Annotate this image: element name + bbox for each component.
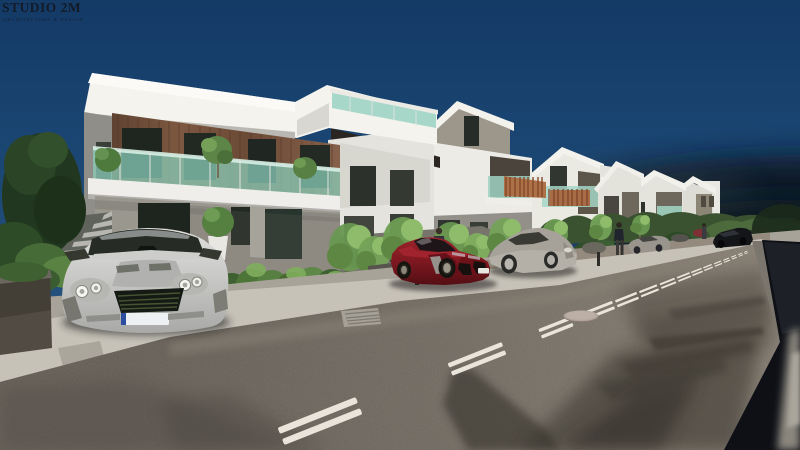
svg-text:ARCHITECTURE & DESIGN: ARCHITECTURE & DESIGN [3,17,84,22]
svg-text:STUDIO 2M: STUDIO 2M [2,0,81,15]
